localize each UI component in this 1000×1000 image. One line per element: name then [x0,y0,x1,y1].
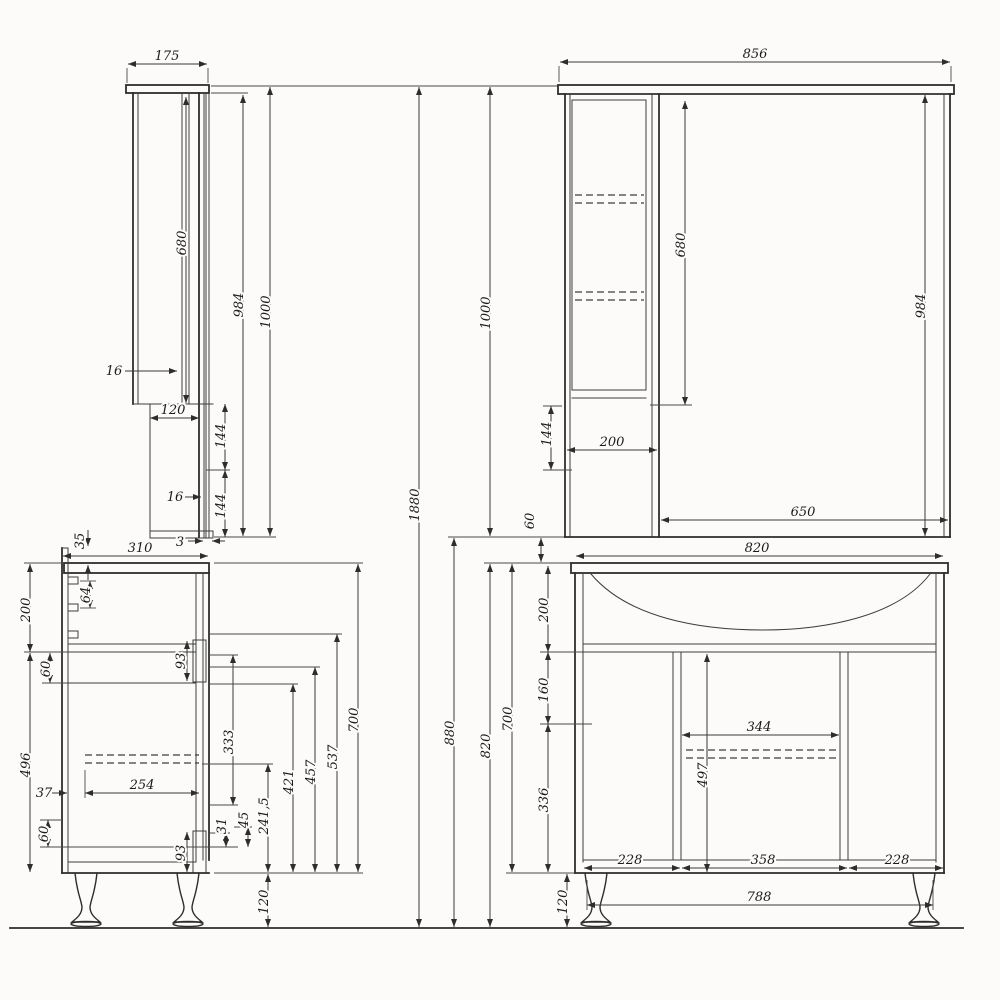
dim-label-93-upper: 93 [174,653,189,670]
dim-label-35: 35 [73,533,88,550]
hinge-mark [68,604,78,611]
dim-label-opening: 680 [175,231,190,256]
technical-drawing-page: 175 680 984 1000 16 120 144 16 144 3 [0,0,1000,1000]
dim-label-457: 457 [304,759,319,786]
dim-label-820-height: 820 [479,734,494,759]
shared-lines [10,86,963,928]
dim-label-200: 200 [537,598,552,624]
dim-label-144-upper: 144 [214,424,229,449]
dim-label-front16: 16 [167,490,184,505]
worktop [571,563,948,573]
mirror-cabinet-side-view: 175 680 984 1000 16 120 144 16 144 3 [106,49,274,550]
dim-label-leg120: 120 [257,890,272,915]
dim-label-820-width: 820 [745,541,770,556]
dim-label-344: 344 [747,720,772,735]
dim-label-650: 650 [791,505,816,520]
dim-label-241-5: 241,5 [257,797,272,835]
dim-label-880: 880 [443,721,458,746]
dim-label-228-left: 228 [617,853,643,868]
dim-label-856: 856 [743,47,768,62]
dim-label-700: 700 [501,707,516,732]
hinge-block-lower [193,831,206,873]
hinge-mark [68,577,78,584]
dim-label-1000: 1000 [259,295,274,328]
dim-label-228-right: 228 [884,853,910,868]
dim-label-984: 984 [232,293,247,318]
dim-label-gap60: 60 [523,513,538,530]
dim-label-60-upper: 60 [39,661,54,678]
dim-label-31: 31 [215,818,230,835]
dim-label-1000: 1000 [479,296,494,329]
dim-label-64: 64 [79,587,94,604]
dim-label-45: 45 [237,812,252,830]
dim-label-37: 37 [36,786,53,801]
top-board [558,85,954,94]
dim-label-leg120: 120 [556,890,571,915]
hinge-mark [68,631,78,638]
vanity-front-view: 820 880 820 700 200 160 336 344 497 228 … [443,538,948,927]
dim-label-336: 336 [537,788,552,813]
dim-label-60-lower: 60 [37,826,52,843]
dim-label-984: 984 [914,294,929,319]
dim-label-310: 310 [128,541,153,556]
dim-label-333: 333 [222,730,237,755]
dim-label-144: 144 [540,422,555,447]
dim-label-depth: 175 [155,49,180,64]
dim-label-160: 160 [537,678,552,703]
dim-label-back16: 16 [106,364,123,379]
dim-label-200: 200 [599,435,625,450]
dim-label-144-lower: 144 [214,494,229,519]
top-board [126,85,209,93]
dim-label-680: 680 [674,233,689,258]
dim-label-1880: 1880 [408,488,423,521]
dim-label-120: 120 [161,403,186,418]
sink-basin-curve [591,574,930,630]
dim-label-496: 496 [19,753,34,779]
dim-label-700: 700 [347,708,362,733]
hinge-block-upper [193,640,206,682]
dim-label-537: 537 [326,744,341,770]
dim-label-421: 421 [282,770,297,796]
dim-label-93-lower: 93 [174,845,189,862]
open-shelf-box [572,100,646,390]
drawing-canvas: 175 680 984 1000 16 120 144 16 144 3 [0,0,1000,1000]
dim-label-200: 200 [19,598,34,624]
dim-label-358: 358 [751,853,776,868]
worktop [64,563,209,573]
dim-label-788: 788 [747,890,772,905]
dim-label-497: 497 [696,762,711,789]
vanity-side-view: 35 310 64 200 60 496 37 254 60 93 333 93… [19,530,363,927]
dim-label-254: 254 [129,778,155,793]
dim-label-mirror3: 3 [176,535,184,550]
